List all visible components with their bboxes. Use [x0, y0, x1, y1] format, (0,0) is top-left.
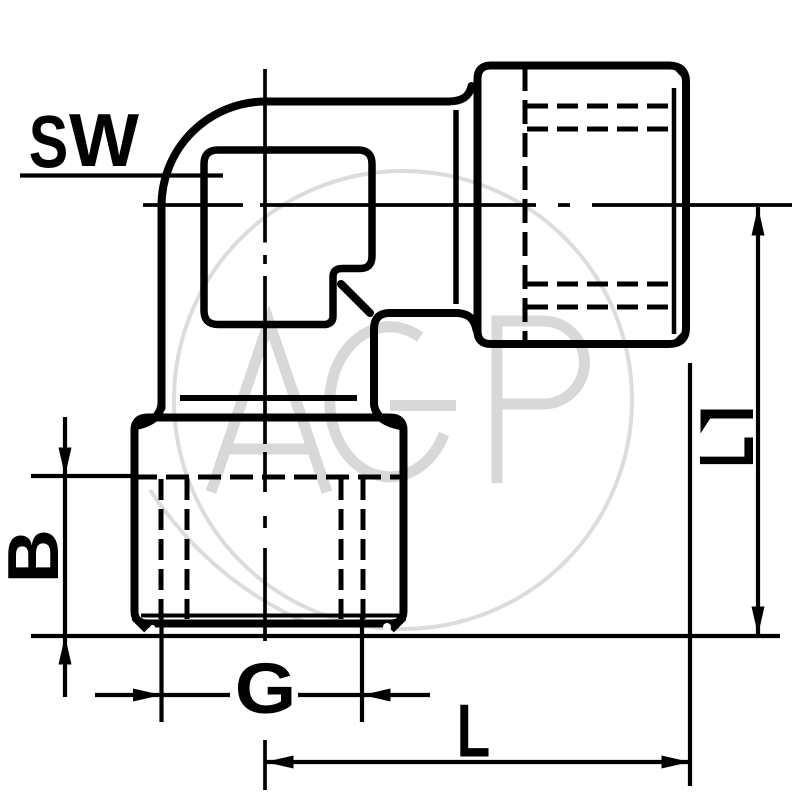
svg-text:W: W [69, 97, 139, 182]
svg-text:L: L [457, 688, 491, 773]
svg-text:G: G [235, 649, 297, 729]
svg-text:B: B [0, 529, 74, 583]
svg-text:S: S [29, 101, 68, 184]
